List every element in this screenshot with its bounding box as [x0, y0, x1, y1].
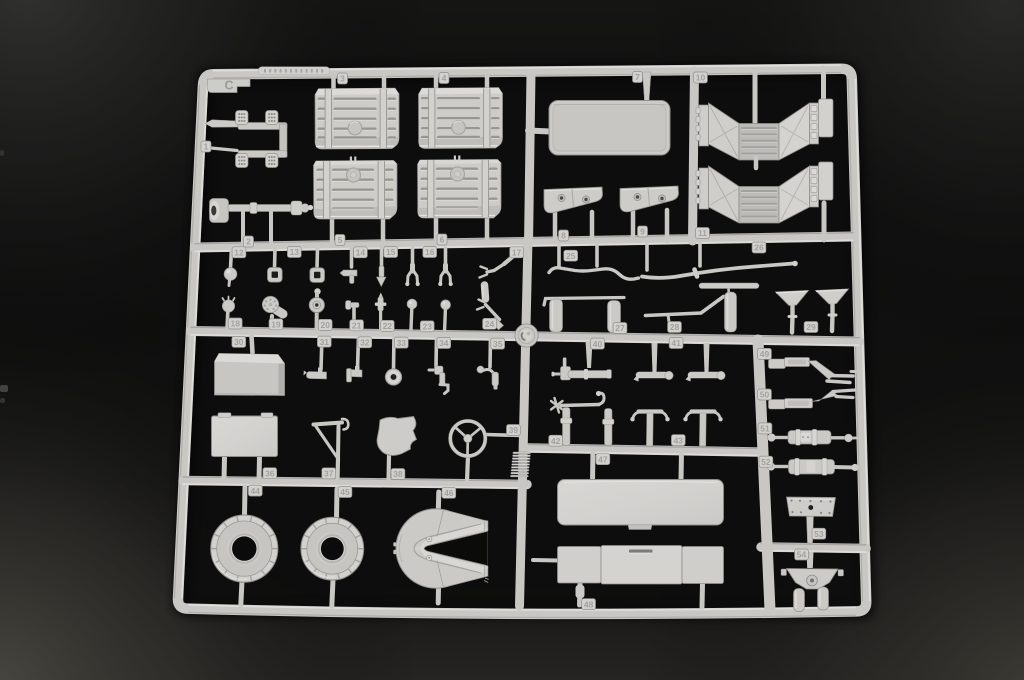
svg-text:2: 2 — [246, 237, 251, 247]
svg-text:37: 37 — [324, 469, 334, 479]
svg-text:32: 32 — [360, 338, 370, 348]
svg-text:41: 41 — [671, 338, 681, 348]
svg-text:14: 14 — [356, 248, 366, 258]
svg-text:3: 3 — [340, 74, 345, 84]
svg-text:50: 50 — [760, 390, 770, 400]
svg-text:12: 12 — [234, 248, 244, 258]
svg-text:48: 48 — [584, 599, 594, 609]
svg-text:6: 6 — [440, 235, 445, 245]
svg-text:25: 25 — [566, 251, 576, 261]
svg-text:4: 4 — [442, 73, 447, 83]
svg-text:28: 28 — [670, 322, 680, 332]
svg-text:45: 45 — [340, 487, 350, 497]
svg-text:35: 35 — [493, 339, 503, 349]
svg-text:1: 1 — [204, 142, 209, 152]
svg-text:10: 10 — [696, 73, 706, 83]
svg-text:51: 51 — [760, 424, 770, 434]
svg-text:29: 29 — [806, 322, 816, 332]
svg-text:44: 44 — [251, 486, 261, 496]
svg-text:20: 20 — [320, 320, 330, 330]
svg-text:8: 8 — [561, 231, 566, 241]
svg-text:34: 34 — [439, 338, 449, 348]
svg-text:39: 39 — [509, 425, 519, 435]
svg-text:15: 15 — [386, 247, 396, 257]
svg-text:7: 7 — [635, 72, 640, 82]
svg-text:5: 5 — [338, 235, 343, 245]
svg-text:30: 30 — [234, 337, 244, 347]
svg-text:42: 42 — [551, 436, 561, 446]
svg-text:13: 13 — [290, 247, 300, 257]
svg-text:33: 33 — [397, 338, 407, 348]
svg-text:23: 23 — [422, 322, 432, 332]
svg-text:22: 22 — [383, 321, 393, 331]
svg-text:11: 11 — [698, 228, 707, 238]
svg-text:9: 9 — [640, 227, 645, 237]
svg-text:53: 53 — [814, 529, 824, 539]
svg-text:16: 16 — [425, 247, 435, 257]
svg-text:31: 31 — [320, 337, 330, 347]
svg-text:52: 52 — [761, 457, 771, 467]
svg-text:47: 47 — [598, 454, 608, 464]
svg-text:18: 18 — [230, 319, 240, 329]
svg-text:24: 24 — [485, 319, 495, 329]
svg-text:49: 49 — [760, 349, 770, 359]
svg-text:C: C — [224, 79, 233, 93]
svg-text:40: 40 — [593, 339, 603, 349]
svg-text:21: 21 — [352, 321, 362, 331]
svg-text:17: 17 — [512, 248, 522, 258]
svg-text:26: 26 — [754, 243, 764, 253]
svg-text:27: 27 — [615, 323, 625, 333]
svg-text:46: 46 — [444, 488, 454, 498]
svg-text:54: 54 — [797, 550, 807, 560]
svg-text:38: 38 — [393, 469, 403, 479]
svg-text:43: 43 — [674, 435, 684, 445]
svg-text:19: 19 — [271, 320, 281, 330]
svg-text:36: 36 — [265, 468, 275, 478]
